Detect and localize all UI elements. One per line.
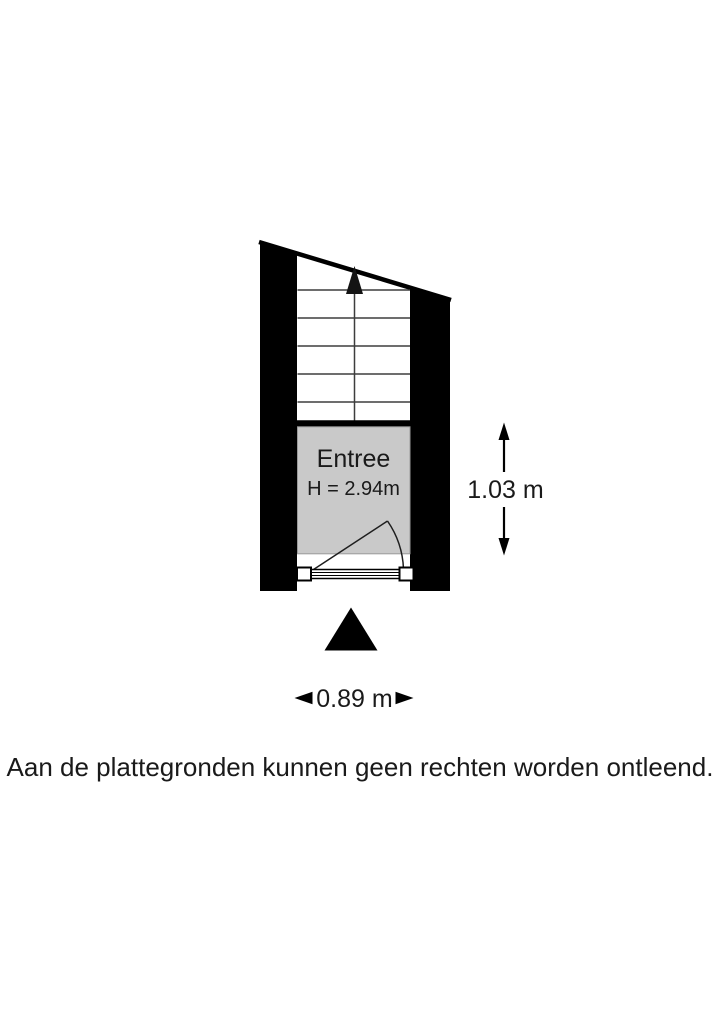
vdim-arrowhead-up [499,423,510,441]
room-name-label: Entree [297,446,410,474]
door-post-right [400,568,414,581]
vertical-dimension-label: 1.03 m [460,477,551,505]
right-wall [410,287,450,592]
left-wall [260,241,297,591]
floorplan-drawing [0,0,720,1017]
hdim-arrowhead-right [396,692,414,704]
hdim-arrowhead-left [295,692,313,704]
disclaimer-text: Aan de plattegronden kunnen geen rechten… [0,753,720,782]
door-post-left [297,568,311,581]
vdim-arrowhead-down [499,538,510,556]
floorplan-page: Entree H = 2.94m 1.03 m 0.89 m Aan de pl… [0,0,720,1017]
horizontal-dimension-label: 0.89 m [314,686,395,714]
room-height-label: H = 2.94m [292,478,415,500]
door-leaf [311,570,400,579]
north-arrow-icon [325,608,378,651]
